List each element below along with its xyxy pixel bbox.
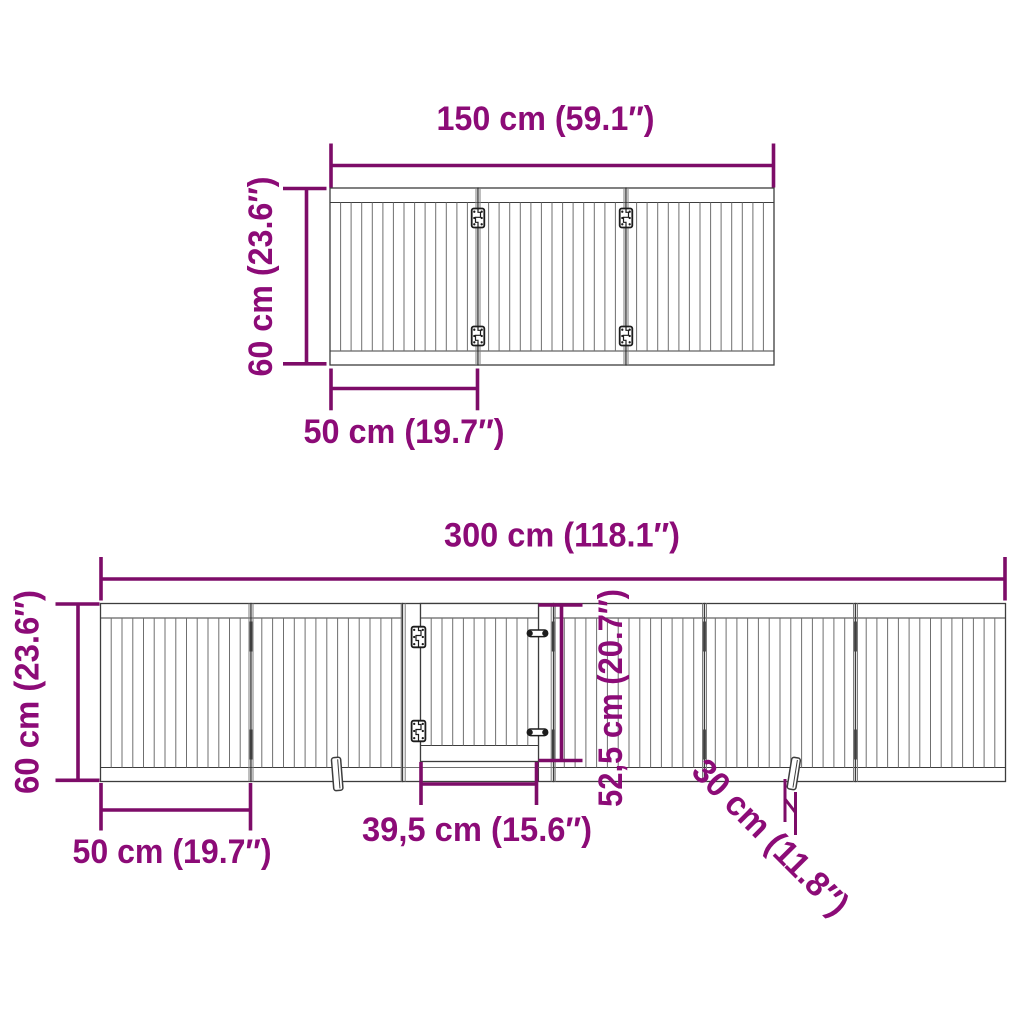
svg-text:60 cm (23.6″): 60 cm (23.6″) — [242, 177, 280, 377]
svg-text:50 cm (19.7″): 50 cm (19.7″) — [304, 413, 505, 451]
svg-text:60 cm (23.6″): 60 cm (23.6″) — [9, 590, 47, 794]
svg-text:50 cm (19.7″): 50 cm (19.7″) — [73, 833, 272, 871]
svg-text:39,5 cm (15.6″): 39,5 cm (15.6″) — [362, 811, 592, 849]
svg-text:52,5 cm (20.7″): 52,5 cm (20.7″) — [592, 589, 630, 807]
svg-text:300 cm (118.1″): 300 cm (118.1″) — [444, 517, 680, 555]
svg-text:150 cm (59.1″): 150 cm (59.1″) — [437, 100, 655, 138]
